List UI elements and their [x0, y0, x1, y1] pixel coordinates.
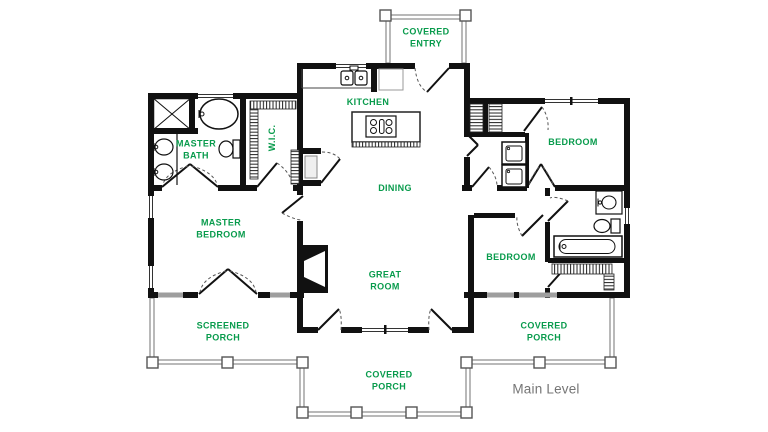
toilet-icon [219, 140, 240, 158]
door-swing [429, 309, 431, 330]
door-leaf [282, 196, 303, 213]
label-screened-porch: SCREENED PORCH [197, 320, 250, 343]
door-swing [322, 152, 340, 159]
label-bedroom-se: BEDROOM [486, 252, 535, 264]
wall-segment [297, 221, 303, 247]
label-covered-entry: COVERED ENTRY [403, 26, 450, 49]
wall-segment [297, 63, 336, 69]
label-kitchen: KITCHEN [347, 97, 389, 109]
wall-segment [483, 103, 488, 132]
side-porch-rail [610, 298, 614, 362]
door-leaf [548, 201, 568, 221]
label-master-bath: MASTER BATH [176, 138, 216, 161]
door-swing [339, 309, 341, 330]
wall-segment [624, 224, 630, 298]
wall-segment [297, 291, 303, 333]
wall-segment [555, 185, 630, 191]
wall-segment [366, 63, 415, 69]
shower-icon [153, 98, 191, 130]
post [461, 357, 472, 368]
front-porch-rail [466, 362, 470, 414]
wall-segment [303, 180, 321, 186]
door-swing [415, 68, 427, 92]
post [605, 357, 616, 368]
post [147, 357, 158, 368]
post [380, 10, 391, 21]
wall-segment [545, 222, 550, 262]
wall-segment [464, 132, 525, 137]
door-leaf [257, 163, 277, 187]
post [222, 357, 233, 368]
post [460, 10, 471, 21]
wall-segment [474, 213, 515, 218]
bath2-tub-icon [554, 236, 622, 257]
window [487, 293, 514, 298]
kitchen-sink-icon [341, 66, 367, 85]
wall-segment [462, 185, 472, 191]
label-main-level: Main Level [512, 382, 579, 397]
entry-rail [462, 15, 466, 63]
door-leaf [427, 68, 449, 92]
label-dining: DINING [378, 183, 412, 195]
label-covered-porch-side: COVERED PORCH [521, 320, 568, 343]
cabinet [305, 156, 317, 178]
door-leaf [318, 309, 339, 330]
wall-segment [624, 98, 630, 208]
door-leaf [472, 167, 489, 187]
fireplace-icon [297, 245, 328, 293]
post [461, 407, 472, 418]
wall-segment [240, 93, 246, 185]
wall-segment [371, 69, 377, 92]
door-leaf [199, 269, 228, 294]
post [351, 407, 362, 418]
door-swing [489, 167, 497, 186]
wall-segment [183, 292, 198, 298]
windows-glazed [158, 293, 557, 298]
wall-segment [464, 63, 470, 104]
kitchen-island [352, 112, 420, 147]
label-great-room: GREAT ROOM [369, 269, 402, 292]
entry-rail [386, 15, 390, 63]
door-swing [282, 213, 302, 220]
floor-plan: COVERED ENTRY KITCHEN MASTER BATH W.I.C.… [0, 0, 768, 432]
window-mullion [384, 325, 387, 334]
wall-segment [545, 188, 550, 196]
wall-segment [341, 327, 362, 333]
wall-segment [464, 104, 470, 133]
floor-plan-drawing [0, 0, 768, 432]
wall-segment [258, 292, 270, 298]
window [519, 293, 557, 298]
bathtub-icon [199, 99, 238, 129]
wall-segment [303, 148, 321, 154]
door-leaf [524, 107, 542, 131]
window [158, 293, 183, 298]
door-leaf [321, 159, 340, 183]
post [406, 407, 417, 418]
wall-segment [148, 218, 154, 266]
door-leaf [228, 269, 257, 294]
entry-rail [386, 15, 466, 19]
wall-segment [464, 292, 487, 298]
wall-segment [548, 258, 624, 263]
label-bedroom-ne: BEDROOM [548, 137, 597, 149]
entry-closet [379, 69, 403, 90]
door-swing [550, 197, 568, 201]
wall-segment [148, 185, 162, 191]
label-wic: W.I.C. [267, 125, 279, 152]
door-leaf [467, 145, 478, 156]
label-master-bedroom: MASTER BEDROOM [196, 217, 245, 240]
wall-segment [557, 292, 630, 298]
window [270, 293, 290, 298]
wall-segment [297, 327, 318, 333]
door-swing [542, 107, 548, 130]
window-mullion [570, 97, 573, 105]
screened-porch-rail [150, 298, 154, 364]
bath2-toilet-icon [594, 219, 620, 233]
wall-segment [514, 292, 519, 298]
front-porch-rail [300, 362, 304, 414]
door-leaf [190, 164, 218, 187]
wall-segment [408, 327, 429, 333]
bath2-sink-icon [596, 191, 622, 214]
label-covered-porch-front: COVERED PORCH [366, 369, 413, 392]
wall-segment [468, 215, 474, 333]
post [297, 407, 308, 418]
wall-segment [218, 185, 257, 191]
washer-dryer-icon [502, 142, 526, 187]
front-porch-rail [300, 412, 470, 416]
wall-segment [464, 98, 545, 104]
door-leaf [162, 164, 190, 187]
wall-segment [148, 292, 158, 298]
door-leaf [431, 309, 452, 330]
post [297, 357, 308, 368]
door-swing [517, 216, 522, 236]
door-leaf [522, 215, 543, 236]
closet-shelving [552, 264, 614, 290]
post [534, 357, 545, 368]
